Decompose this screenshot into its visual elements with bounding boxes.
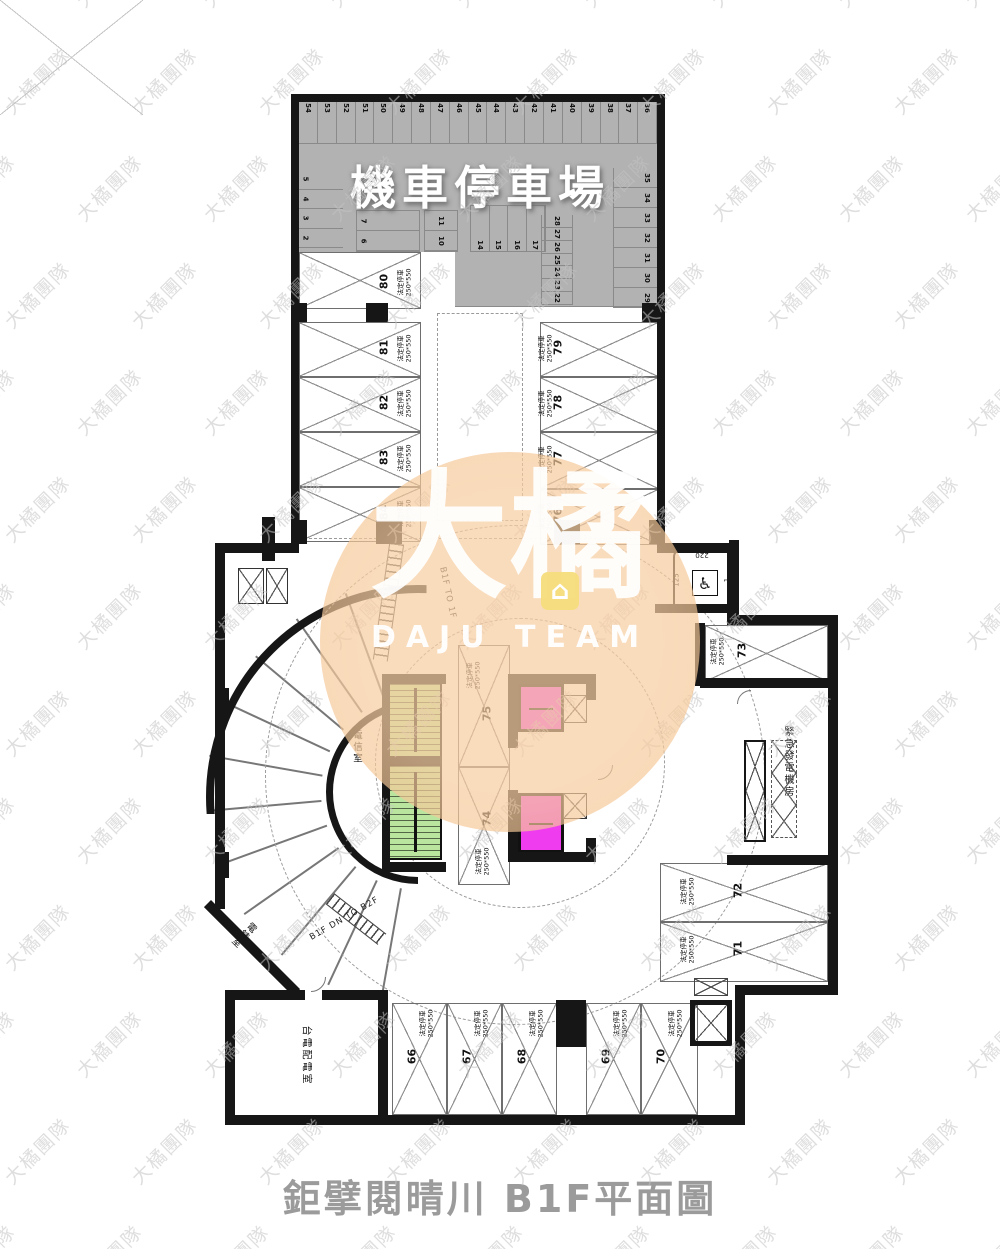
parking-spot-number: 68 xyxy=(516,1045,529,1069)
moto-spot-number: 38 xyxy=(605,103,613,113)
moto-spot-number: 10 xyxy=(437,236,445,246)
moto-spot-number: 26 xyxy=(553,242,561,252)
watermark-text: 大橘團隊 xyxy=(0,469,76,547)
moto-stall: 51 xyxy=(356,102,375,143)
watermark-text: 大橘團隊 xyxy=(578,0,656,13)
watermark-text: 大橘團隊 xyxy=(959,1004,1000,1082)
stall-legal-label: 法定停車250*550 xyxy=(420,1003,435,1045)
moto-spot-number: 17 xyxy=(531,240,539,250)
watermark-text: 大橘團隊 xyxy=(959,362,1000,440)
watermark-text: 大橘團隊 xyxy=(0,683,76,761)
watermark-text: 大橘團隊 xyxy=(705,0,783,13)
watermark-text: 大橘團隊 xyxy=(832,362,910,440)
stall-size-label: 250*550 xyxy=(546,383,554,425)
moto-stall: 37 xyxy=(619,102,638,143)
stall-size-label: 250*550 xyxy=(537,1003,545,1045)
watermark-text: 大橘團隊 xyxy=(70,1004,148,1082)
moto-spot-number: 6 xyxy=(359,238,367,243)
moto-spot-number: 53 xyxy=(323,103,331,113)
watermark-text: 大橘團隊 xyxy=(451,0,529,13)
watermark-text: 大橘團隊 xyxy=(125,255,203,333)
moto-stall: 48 xyxy=(412,102,431,143)
watermark-text: 大橘團隊 xyxy=(887,41,965,119)
moto-stall: 27 xyxy=(542,228,572,241)
moto-stall: 2 xyxy=(299,229,343,249)
moto-stall: 30 xyxy=(614,268,657,288)
moto-stall: 54 xyxy=(299,102,318,143)
parking-spot-number: 80 xyxy=(378,270,391,294)
wall-segment xyxy=(828,615,838,995)
watermark-text: 大橘團隊 xyxy=(705,148,783,226)
watermark-text: 大橘團隊 xyxy=(197,148,275,226)
watermark-text: 大橘團隊 xyxy=(70,148,148,226)
moto-spot-number: 45 xyxy=(474,103,482,113)
moto-stall: 26 xyxy=(542,241,572,254)
moto-spot-number: 16 xyxy=(513,240,521,250)
watermark-text: 大橘團隊 xyxy=(705,362,783,440)
logo-house-box: ⌂ xyxy=(541,572,579,610)
watermark-text: 大橘團隊 xyxy=(0,897,76,975)
watermark-text: 大橘團隊 xyxy=(760,255,838,333)
watermark-text: 大橘團隊 xyxy=(70,576,148,654)
watermark-text: 大橘團隊 xyxy=(70,790,148,868)
moto-spot-number: 30 xyxy=(643,273,651,283)
moto-spot-number: 46 xyxy=(455,103,463,113)
moto-spot-number: 48 xyxy=(417,103,425,113)
moto-spot-number: 37 xyxy=(624,103,632,113)
moto-stall: 47 xyxy=(431,102,450,143)
wall-segment xyxy=(745,985,838,995)
moto-spot-number: 51 xyxy=(360,103,368,113)
moto-spot-number: 40 xyxy=(568,103,576,113)
stall-size-label: 250*550 xyxy=(405,328,413,370)
moto-stall-group: 54535251504948474645444342414039383736 xyxy=(299,102,657,144)
watermark-text: 大橘團隊 xyxy=(832,790,910,868)
watermark-text: 大橘團隊 xyxy=(832,0,910,13)
watermark-text: 大橘團隊 xyxy=(832,576,910,654)
moto-spot-number: 54 xyxy=(304,103,312,113)
moto-spot-number: 15 xyxy=(494,240,502,250)
moto-stall: 38 xyxy=(601,102,620,143)
watermark-text: 大橘團隊 xyxy=(887,897,965,975)
stall-legal-label: 法定停車250*550 xyxy=(398,328,413,370)
watermark-text: 大橘團隊 xyxy=(0,576,21,654)
watermark-text: 大橘團隊 xyxy=(959,0,1000,13)
moto-stall: 46 xyxy=(450,102,469,143)
watermark-text: 大橘團隊 xyxy=(633,41,711,119)
door-arc xyxy=(296,962,326,992)
moto-spot-number: 27 xyxy=(553,229,561,239)
moto-spot-number: 47 xyxy=(436,103,444,113)
watermark-text: 大橘團隊 xyxy=(125,683,203,761)
house-icon: ⌂ xyxy=(551,576,570,606)
watermark-text: 大橘團隊 xyxy=(197,0,275,13)
wall-segment xyxy=(556,1000,586,1047)
moto-stall: 31 xyxy=(614,248,657,268)
moto-stall: 6 xyxy=(357,231,419,251)
watermark-text: 大橘團隊 xyxy=(959,790,1000,868)
moto-stall: 44 xyxy=(487,102,506,143)
stall-legal-label: 法定停車250*550 xyxy=(530,1003,545,1045)
watermark-text: 大橘團隊 xyxy=(324,1004,402,1082)
watermark-text: 大橘團隊 xyxy=(70,362,148,440)
watermark-text: 大橘團隊 xyxy=(0,362,21,440)
wall-segment xyxy=(382,862,446,872)
watermark-text: 大橘團隊 xyxy=(760,41,838,119)
moto-stall: 40 xyxy=(563,102,582,143)
wall-segment xyxy=(215,688,229,714)
pit-shaft xyxy=(690,1000,732,1046)
moto-stall: 52 xyxy=(337,102,356,143)
moto-stall: 45 xyxy=(469,102,488,143)
watermark-text: 大橘團隊 xyxy=(832,148,910,226)
watermark-text: 大橘團隊 xyxy=(887,255,965,333)
parking-spot-number: 70 xyxy=(655,1045,668,1069)
wall-segment xyxy=(727,855,838,865)
logo-team-text: DAJU TEAM xyxy=(330,620,690,655)
parking-spot-number: 72 xyxy=(732,879,745,903)
moto-spot-number: 32 xyxy=(643,233,651,243)
stall-size-label: 250*550 xyxy=(546,328,554,370)
room-taipower-label: 台電配電室 xyxy=(301,1016,316,1096)
parking-spot-number: 81 xyxy=(378,336,391,360)
wall-segment xyxy=(215,543,299,553)
watermark-text: 大橘團隊 xyxy=(887,469,965,547)
wheelchair-icon: ♿ xyxy=(698,574,712,593)
stall-legal-label: 法定停車250*550 xyxy=(669,1003,684,1045)
watermark-text: 大橘團隊 xyxy=(959,576,1000,654)
watermark-text: 大橘團隊 xyxy=(197,362,275,440)
floorplan-canvas: 機車停車場 電信室 緊急發電機房 電錶室 台電配電室 B1F TO 1F B1F… xyxy=(0,0,1000,1249)
shaft xyxy=(694,978,728,996)
moto-spot-number: 41 xyxy=(549,103,557,113)
stall-legal-label: 法定停車250*550 xyxy=(539,328,554,370)
moto-spot-number: 52 xyxy=(342,103,350,113)
watermark-text: 大橘團隊 xyxy=(887,683,965,761)
moto-stall: 32 xyxy=(614,228,657,248)
wheelchair-box: ♿ xyxy=(692,570,718,596)
watermark-text: 大橘團隊 xyxy=(197,1004,275,1082)
watermark-text: 大橘團隊 xyxy=(125,897,203,975)
watermark-text: 大橘團隊 xyxy=(959,148,1000,226)
stall-size-label: 250*550 xyxy=(405,383,413,425)
parking-spot-number: 73 xyxy=(736,639,749,663)
moto-stall: 39 xyxy=(582,102,601,143)
watermark-text: 大橘團隊 xyxy=(197,576,275,654)
moto-stall: 41 xyxy=(544,102,563,143)
moto-spot-number: 7 xyxy=(359,218,367,223)
stall-legal-label: 法定停車250*550 xyxy=(539,383,554,425)
watermark-text: 大橘團隊 xyxy=(0,255,76,333)
watermark-text: 大橘團隊 xyxy=(0,148,21,226)
stall-size-label: 250*550 xyxy=(676,1003,684,1045)
moto-spot-number: 39 xyxy=(587,103,595,113)
watermark-text: 大橘團隊 xyxy=(125,469,203,547)
moto-spot-number: 14 xyxy=(476,240,484,250)
moto-spot-number: 2 xyxy=(301,235,309,240)
watermark-text: 大橘團隊 xyxy=(0,790,21,868)
wall-segment xyxy=(291,94,665,102)
watermark-text: 大橘團隊 xyxy=(0,1004,21,1082)
parking-spot-number: 71 xyxy=(732,937,745,961)
watermark-text: 大橘團隊 xyxy=(760,683,838,761)
stall-size-label: 250*550 xyxy=(427,1003,435,1045)
watermark-text: 大橘團隊 xyxy=(760,469,838,547)
moto-spot-number: 44 xyxy=(492,103,500,113)
logo-brand-text: 大橘 xyxy=(330,458,690,618)
moto-spot-number: 31 xyxy=(643,253,651,263)
watermark-text: 大橘團隊 xyxy=(832,1004,910,1082)
moto-stall: 53 xyxy=(318,102,337,143)
parking-spot-number: 66 xyxy=(406,1045,419,1069)
watermark-text: 大橘團隊 xyxy=(324,0,402,13)
moto-stall: 10 xyxy=(425,231,457,251)
stall-legal-label: 法定停車250*550 xyxy=(398,383,413,425)
